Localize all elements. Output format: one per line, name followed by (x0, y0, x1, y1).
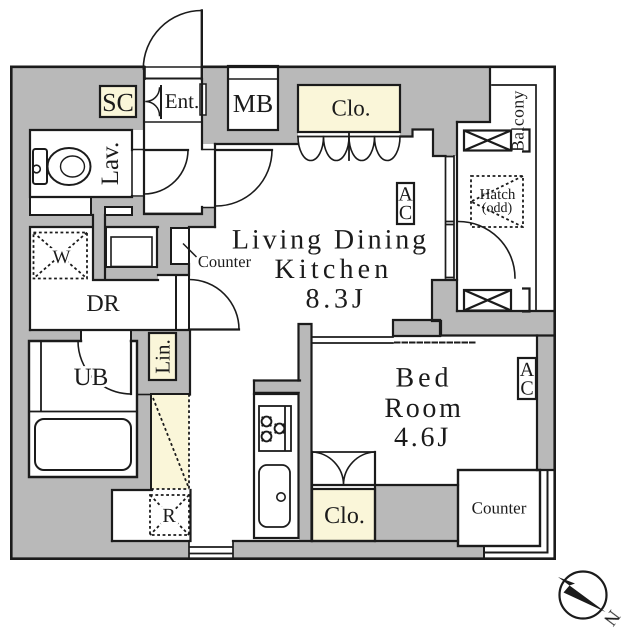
svg-text:Lin.: Lin. (151, 339, 175, 373)
svg-text:DR: DR (86, 291, 119, 317)
svg-text:Ent.: Ent. (165, 89, 199, 113)
svg-text:C: C (520, 378, 533, 400)
svg-text:MB: MB (233, 89, 273, 118)
svg-text:Lav.: Lav. (97, 142, 124, 186)
svg-text:R: R (162, 505, 176, 527)
svg-text:4.6J: 4.6J (394, 422, 451, 453)
svg-text:Clo.: Clo. (332, 96, 371, 121)
svg-text:SC: SC (102, 88, 134, 117)
svg-text:8.3J: 8.3J (305, 284, 366, 315)
svg-text:C: C (399, 202, 412, 224)
svg-text:Counter: Counter (472, 499, 527, 518)
svg-text:Bed: Bed (395, 363, 452, 394)
svg-text:Kitchen: Kitchen (274, 254, 392, 285)
svg-text:Clo.: Clo. (324, 503, 365, 529)
svg-text:UB: UB (74, 364, 109, 391)
svg-text:Balcony: Balcony (508, 90, 528, 152)
svg-text:Living Dining: Living Dining (232, 225, 429, 256)
svg-text:(odd): (odd) (482, 201, 513, 216)
svg-text:Room: Room (384, 393, 463, 424)
svg-text:W: W (53, 247, 71, 268)
